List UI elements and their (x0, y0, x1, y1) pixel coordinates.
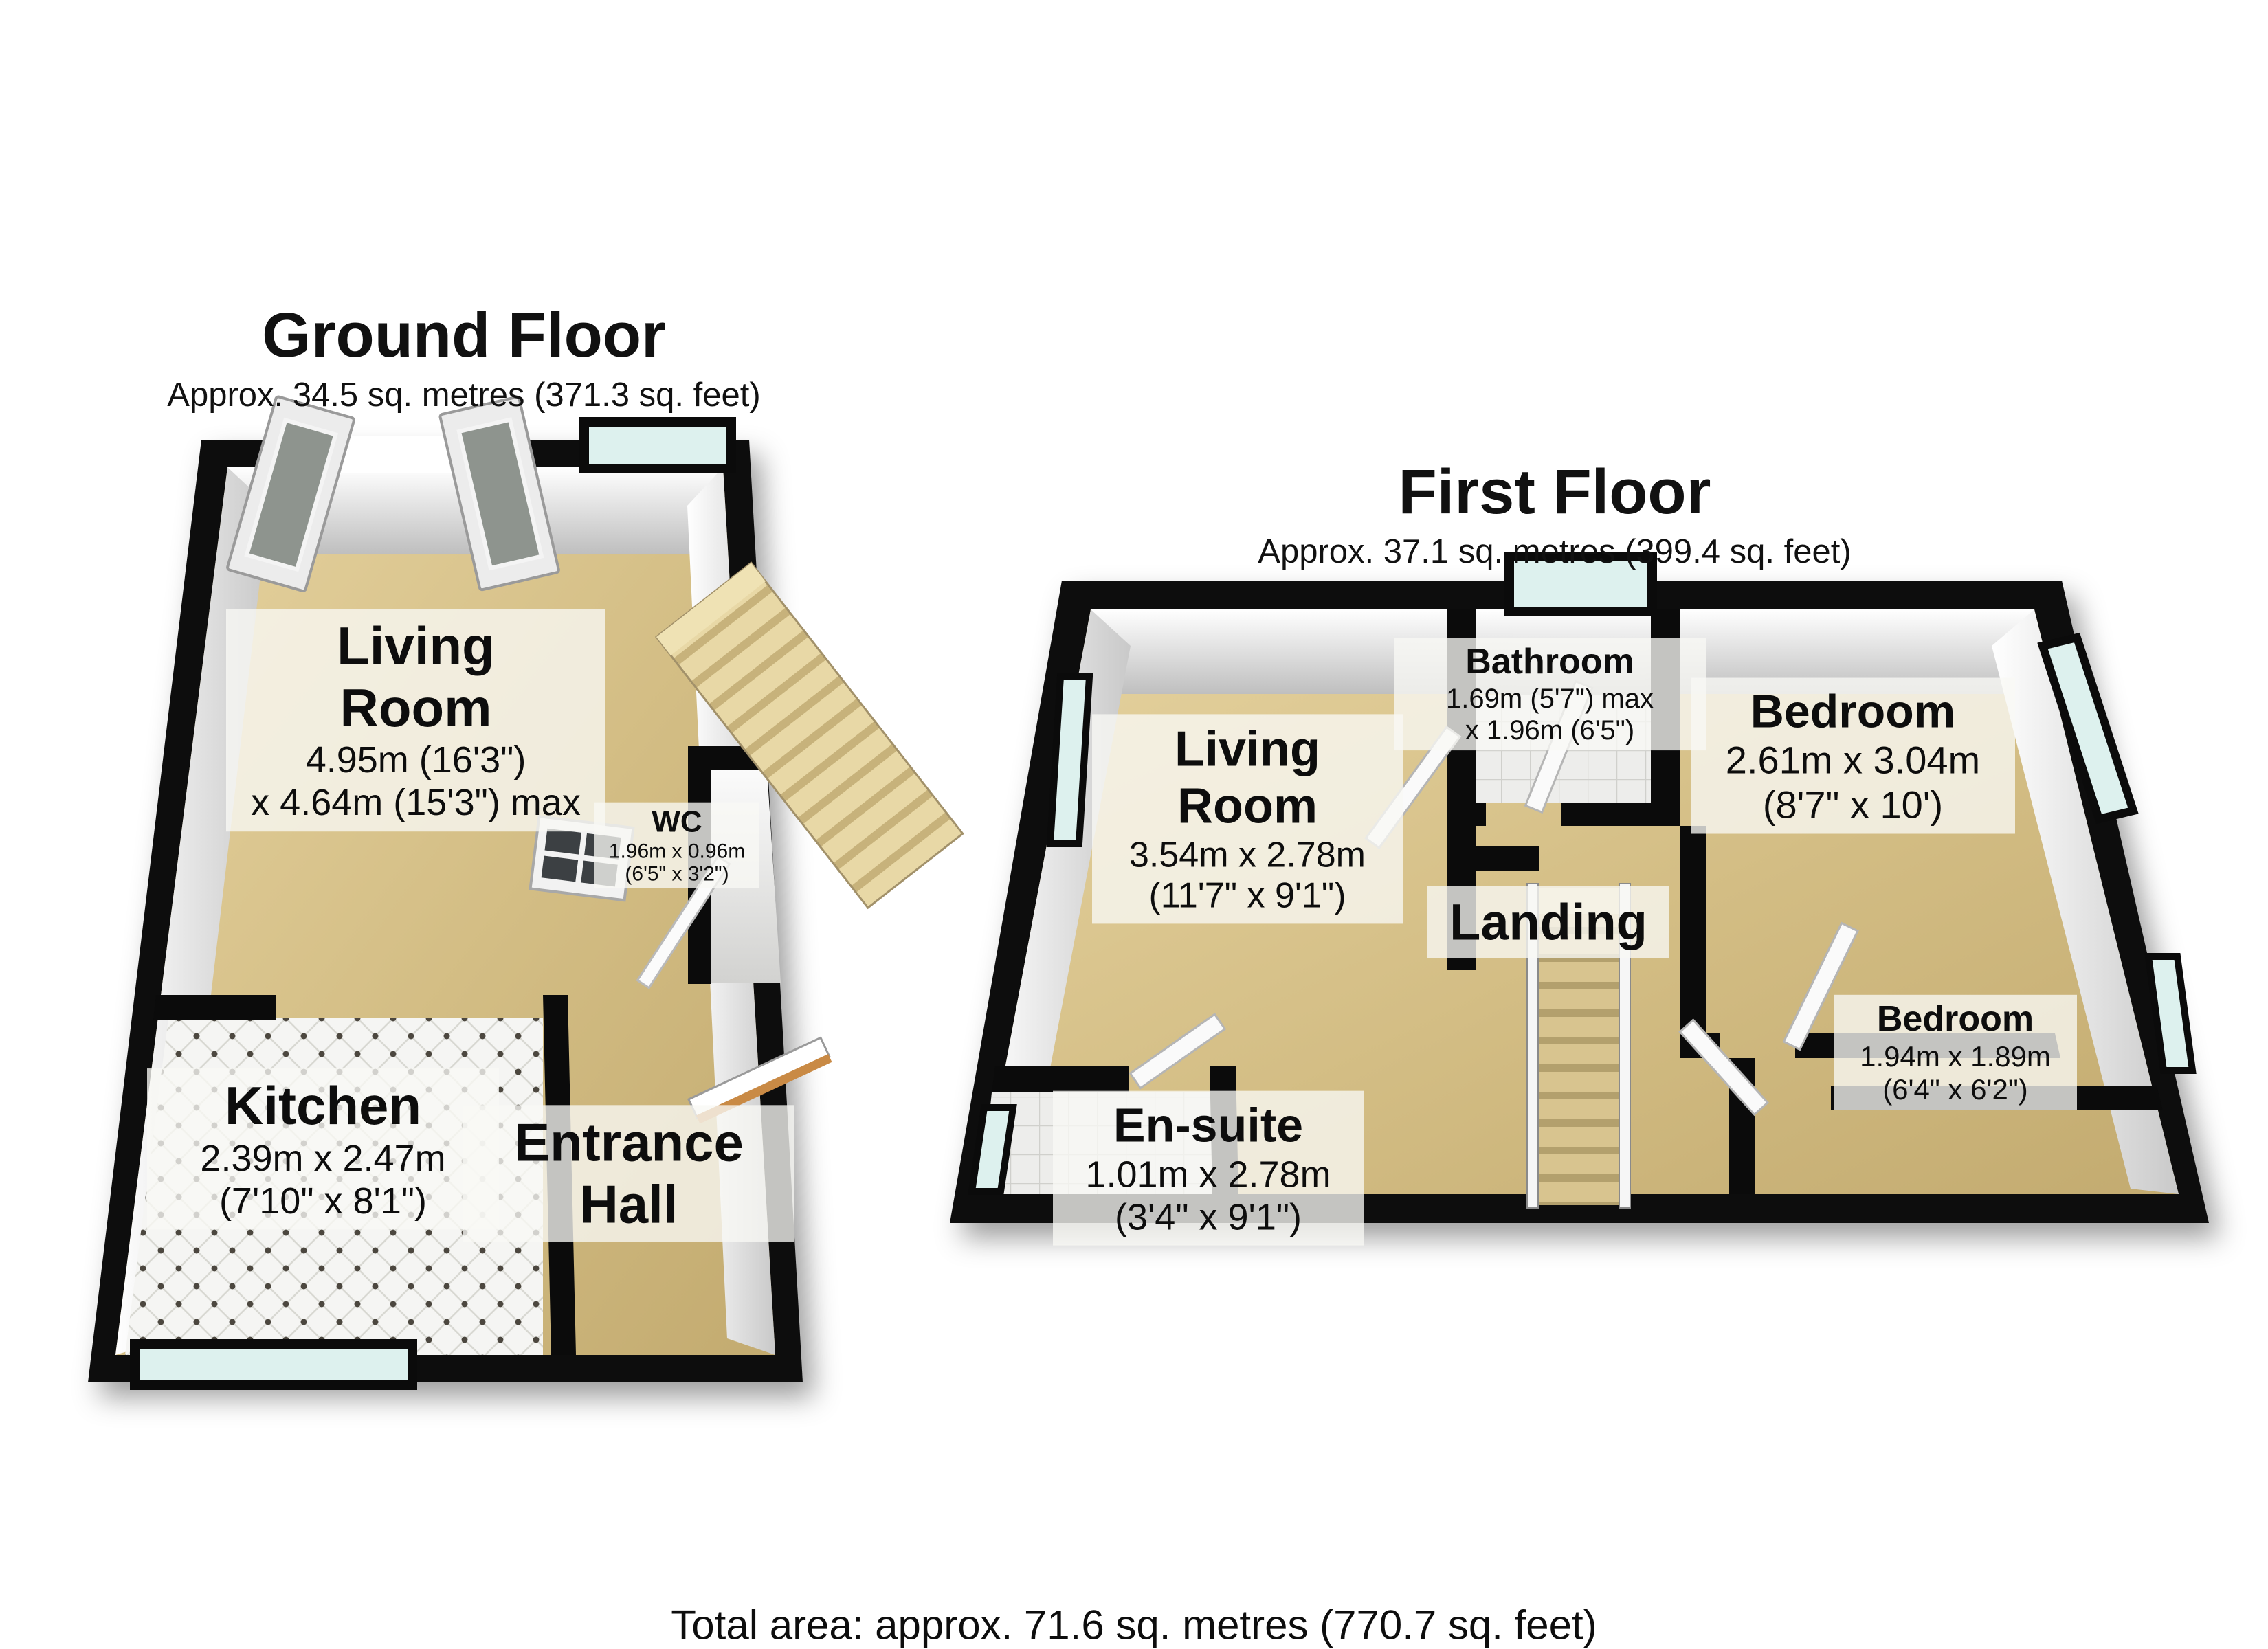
wc-name: WC (596, 805, 758, 840)
first-floor-title: First Floor (1258, 459, 1851, 526)
first-floor-area: Approx. 37.1 sq. metres (399.4 sq. feet) (1258, 532, 1851, 571)
ensuite-dim2: (3'4" x 9'1") (1057, 1196, 1359, 1238)
total-area-text: Total area: approx. 71.6 sq. metres (770… (671, 1602, 1597, 1649)
ff-living-room-name: Living Room (1148, 721, 1347, 835)
bedroom-2-name: Bedroom (1835, 999, 2076, 1040)
bathroom-bottom-wall-b (1561, 803, 1680, 826)
kitchen-dim2: (7'10" x 8'1") (151, 1180, 495, 1222)
room-label-bathroom: Bathroom 1.69m (5'7") max x 1.96m (6'5") (1394, 638, 1706, 750)
room-label-entrance-hall: Entrance Hall (463, 1105, 794, 1242)
entrance-hall-name: Entrance Hall (491, 1112, 766, 1235)
bedroom-1-name: Bedroom (1695, 685, 2011, 739)
ground-floor-title: Ground Floor (167, 302, 760, 369)
room-label-kitchen: Kitchen 2.39m x 2.47m (7'10" x 8'1") (147, 1068, 499, 1229)
ensuite-dim1: 1.01m x 2.78m (1057, 1153, 1359, 1196)
ground-floor-titleblock: Ground Floor Approx. 34.5 sq. metres (37… (167, 302, 760, 414)
room-label-gf-living-room: Living Room 4.95m (16'3") x 4.64m (15'3"… (226, 609, 605, 831)
gf-living-room-name: Living Room (309, 616, 522, 739)
ensuite-top-wall (992, 1066, 1129, 1092)
wc-dim1: 1.96m x 0.96m (596, 840, 758, 862)
kitchen-name: Kitchen (151, 1075, 495, 1137)
ensuite-name: En-suite (1057, 1098, 1359, 1154)
gf-living-room-dim1: 4.95m (16'3") (230, 739, 601, 782)
room-label-landing: Landing (1427, 886, 1669, 958)
bedroom-1-dim1: 2.61m x 3.04m (1695, 739, 2011, 783)
gf-kitchen-window (135, 1344, 412, 1385)
room-label-wc: WC 1.96m x 0.96m (6'5" x 3'2") (594, 803, 759, 888)
room-label-ensuite: En-suite 1.01m x 2.78m (3'4" x 9'1") (1053, 1091, 1364, 1246)
ff-living-room-window (1050, 677, 1089, 844)
gf-living-room-dim2: x 4.64m (15'3") max (230, 782, 601, 824)
bathroom-bottom-wall-a (1447, 803, 1486, 826)
landing-name: Landing (1432, 893, 1665, 951)
bedroom-2-dim2: (6'4" x 6'2") (1835, 1073, 2076, 1106)
first-floor-titleblock: First Floor Approx. 37.1 sq. metres (399… (1258, 459, 1851, 571)
ff-living-room-dim1: 3.54m x 2.78m (1096, 835, 1399, 876)
bedroom-1-dim2: (8'7" x 10') (1695, 783, 2011, 827)
bedroom-2-dim1: 1.94m x 1.89m (1835, 1040, 2076, 1073)
stairwell-top-wall (1476, 846, 1539, 871)
ground-floor-area: Approx. 34.5 sq. metres (371.3 sq. feet) (167, 376, 760, 414)
kitchen-dim1: 2.39m x 2.47m (151, 1137, 495, 1180)
gf-north-window (584, 422, 731, 469)
ff-living-room-dim2: (11'7" x 9'1") (1096, 876, 1399, 917)
bathroom-dim2: x 1.96m (6'5") (1395, 715, 1704, 746)
floorplan-page: { "ground_floor": { "title": "Ground Flo… (0, 0, 2268, 1649)
wc-dim2: (6'5" x 3'2") (596, 862, 758, 885)
room-label-bedroom-1: Bedroom 2.61m x 3.04m (8'7" x 10') (1691, 678, 2015, 834)
bathroom-dim1: 1.69m (5'7") max (1395, 683, 1704, 715)
room-label-bedroom-2: Bedroom 1.94m x 1.89m (6'4" x 6'2") (1834, 995, 2077, 1110)
room-label-ff-living-room: Living Room 3.54m x 2.78m (11'7" x 9'1") (1092, 714, 1403, 923)
bathroom-name: Bathroom (1395, 642, 1704, 683)
kitchen-living-wall (153, 995, 276, 1020)
